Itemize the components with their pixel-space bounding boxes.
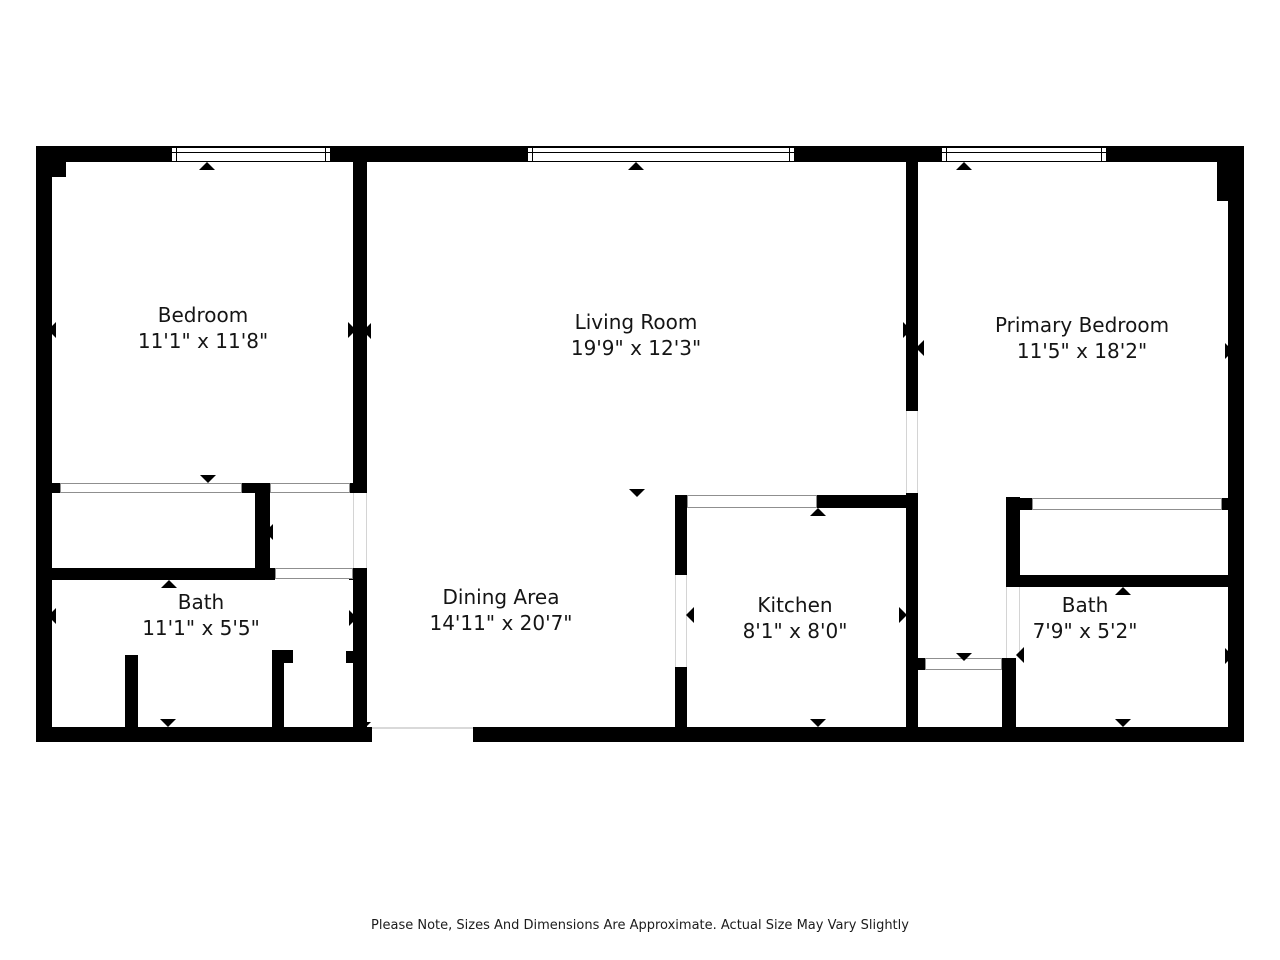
wall-bath-dining [353,568,367,727]
wall-kitchen-left-lower [675,667,687,727]
closet-doors-primary [1032,498,1222,510]
room-dimensions: 14'11" x 20'7" [429,610,572,636]
door-arrow [903,322,911,338]
door-arrow [1115,719,1131,727]
window-mullion [532,148,533,161]
door-arrow [48,322,56,338]
door-arrow [161,580,177,588]
entry-door-arrow [361,722,371,727]
outer-wall-bottom-left [36,727,372,742]
wall-primary-closet-left [1006,497,1020,587]
outer-wall-left-corner-block [36,146,66,177]
room-label-primary-bedroom: Primary Bedroom11'5" x 18'2" [995,312,1169,364]
window-mullion [789,148,790,161]
room-label-bath-left: Bath11'1" x 5'5" [142,589,260,641]
door-arrow [348,322,356,338]
wall-bath-fixture-left [125,655,138,727]
room-dimensions: 7'9" x 5'2" [1033,618,1138,644]
door-arrow [629,489,645,497]
wall-living-primary [906,162,918,411]
outer-wall-right-corner-block [1217,146,1244,201]
room-name: Primary Bedroom [995,312,1169,338]
room-label-kitchen: Kitchen8'1" x 8'0" [743,592,848,644]
floorplan-canvas: Please Note, Sizes And Dimensions Are Ap… [0,0,1280,960]
room-name: Kitchen [743,592,848,618]
window-mullion [946,148,947,161]
wall-kitchen-right [906,493,918,727]
wall-bath-dining-jamb [346,651,353,663]
wall-closet-divider-cap [242,483,270,493]
door-dining-hall [353,493,367,568]
wall-bath-top [36,568,275,580]
closet-doors-bedroom [60,483,242,493]
door-arrow [916,340,924,356]
room-label-living-room: Living Room19'9" x 12'3" [571,309,701,361]
room-label-bedroom: Bedroom11'1" x 11'8" [138,302,268,354]
opening-bath-hall [275,568,353,579]
outer-wall-left [36,146,52,742]
room-dimensions: 11'5" x 18'2" [995,338,1169,364]
door-arrow [200,475,216,483]
room-name: Bath [1033,592,1138,618]
door-living-primary [906,411,918,493]
wall-bath-fixture-right-stub [283,650,293,663]
door-arrow [1225,343,1233,359]
wall-kitchen-left-upper [675,495,687,575]
wall-kitchen-top-solid [817,495,908,508]
window-bedroom [171,147,331,162]
wall-hall-door-cap [918,658,925,670]
room-dimensions: 11'1" x 11'8" [138,328,268,354]
door-arrow [956,653,972,661]
room-label-bath-right: Bath7'9" x 5'2" [1033,592,1138,644]
footer-disclaimer: Please Note, Sizes And Dimensions Are Ap… [0,918,1280,933]
wall-bath2-top [1006,575,1233,587]
window-glazing-line [942,152,1106,153]
window-mullion [176,148,177,161]
window-glazing-line [172,152,330,153]
room-name: Living Room [571,309,701,335]
door-arrow [810,508,826,516]
door-arrow [1225,648,1233,664]
entry-opening-bottom [372,727,473,742]
door-arrow [686,607,694,623]
room-name: Dining Area [429,584,572,610]
window-glazing-line [528,152,794,153]
outer-wall-bottom-right [473,727,1244,742]
door-arrow [48,608,56,624]
window-marker-arrow [956,162,972,170]
room-name: Bedroom [138,302,268,328]
door-arrow [899,607,907,623]
window-living-room [527,147,795,162]
room-dimensions: 19'9" x 12'3" [571,335,701,361]
window-mullion [325,148,326,161]
wall-primary-closet-cap-left [1006,498,1032,510]
wall-hall-right [1002,658,1016,727]
window-mullion [1101,148,1102,161]
window-marker-arrow [628,162,644,170]
room-name: Bath [142,589,260,615]
window-primary-bedroom [941,147,1107,162]
wall-bedroom-living-cap [349,483,367,493]
door-arrow [349,610,357,626]
wall-primary-closet-cap-right [1222,498,1233,510]
door-arrow [160,719,176,727]
door-arrow [1016,647,1024,663]
room-label-dining-area: Dining Area14'11" x 20'7" [429,584,572,636]
opening-bedroom-hall [270,483,350,493]
wall-bedroom-closet-cap [42,483,60,493]
kitchen-pass-through [687,495,817,508]
window-marker-arrow [199,162,215,170]
room-dimensions: 11'1" x 5'5" [142,615,260,641]
door-arrow [363,323,371,339]
door-arrow [810,719,826,727]
door-arrow [265,524,273,540]
room-dimensions: 8'1" x 8'0" [743,618,848,644]
